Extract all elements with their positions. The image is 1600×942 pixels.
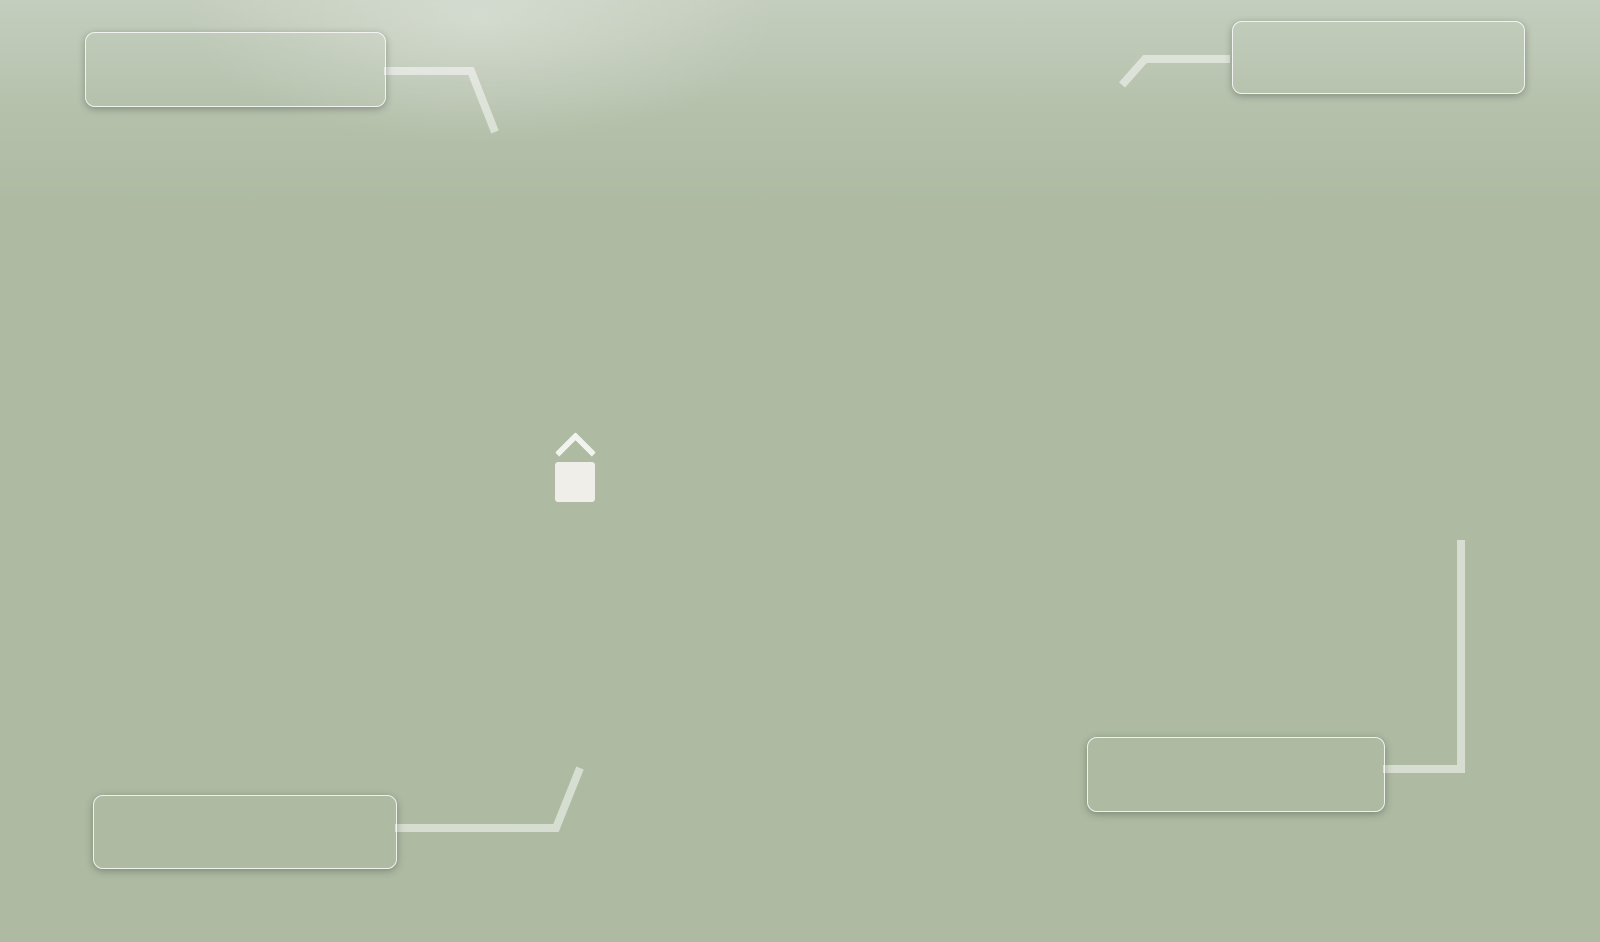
- callout-q1-2026: [1087, 737, 1385, 812]
- callout-q4-2024: [93, 795, 397, 869]
- callout-q4-2025: [1232, 21, 1525, 94]
- residential-complex-masterplan: [0, 0, 1600, 942]
- callout-q3-2025: [85, 32, 386, 107]
